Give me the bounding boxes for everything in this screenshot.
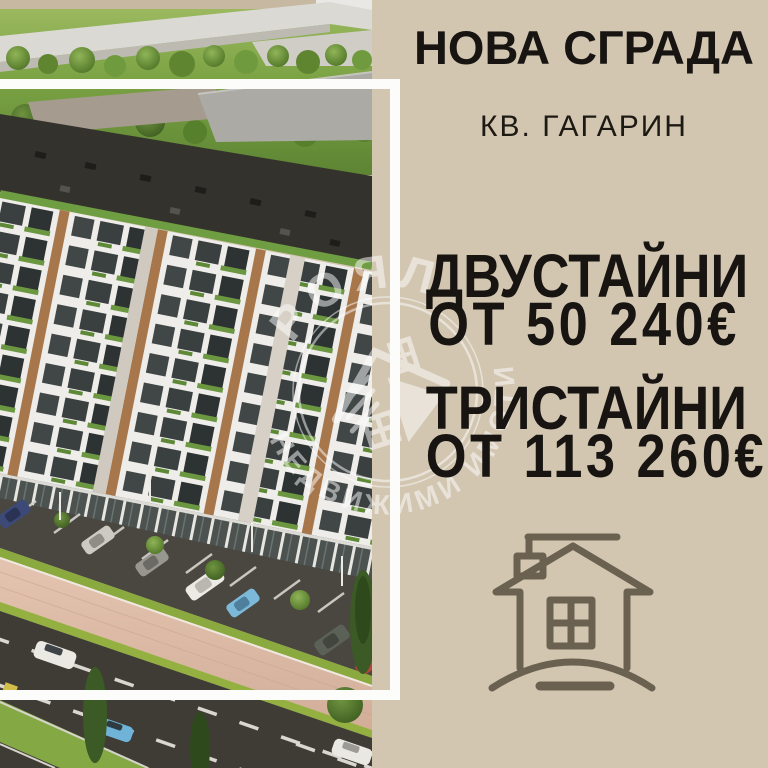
poster: РОЯЛ НЕДВИЖИМИ ИМОТИ НОВА СГРАДА КВ. ГАГ… [0,0,768,768]
house-outline-icon [486,528,688,710]
offer-price-label: ОТ 50 240€ [426,300,742,348]
offer-price-label: ОТ 113 260€ [426,432,742,480]
location-subtitle: КВ. ГАГАРИН [400,110,768,144]
offer-three-room: ТРИСТАЙНИ ОТ 113 260€ [400,384,768,480]
offer-two-room: ДВУСТАЙНИ ОТ 50 240€ [400,252,768,348]
info-panel: НОВА СГРАДА КВ. ГАГАРИН ДВУСТАЙНИ ОТ 50 … [400,0,768,768]
headline: НОВА СГРАДА [400,24,768,71]
photo-frame-border [0,79,400,700]
